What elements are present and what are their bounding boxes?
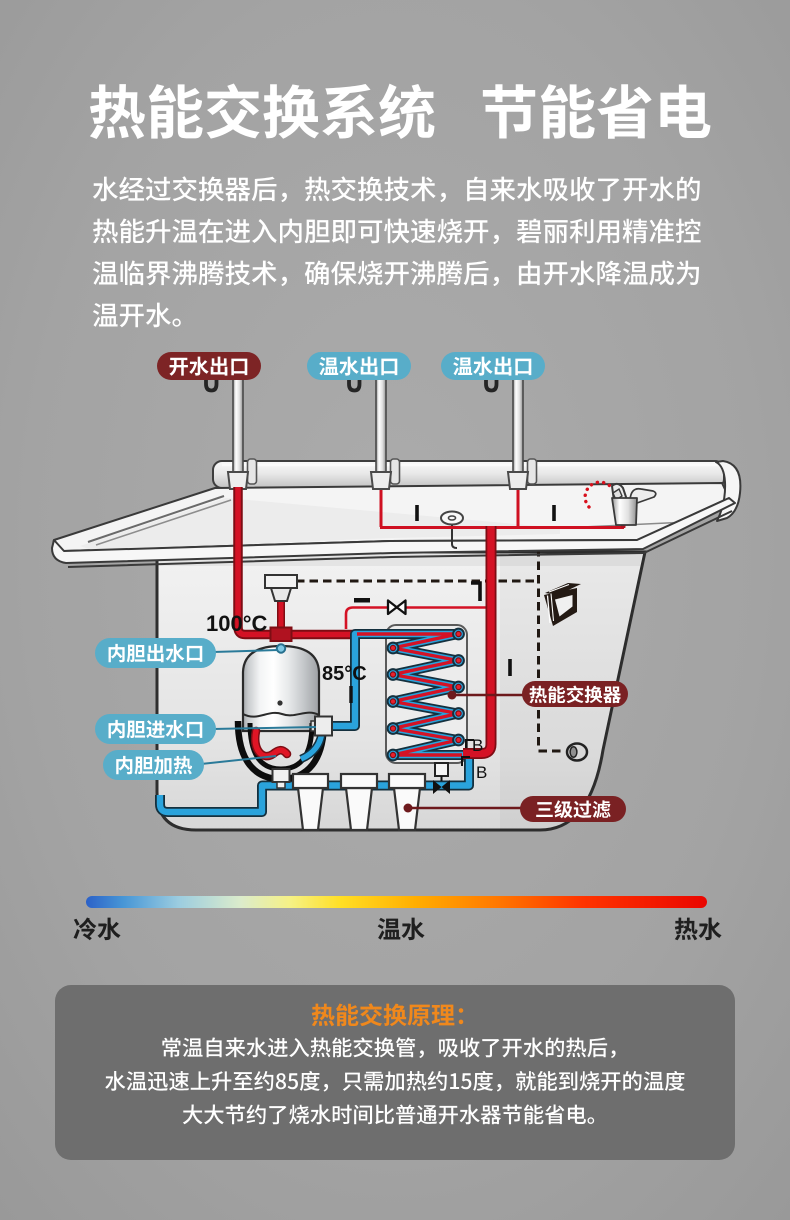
svg-text:B: B — [476, 763, 487, 782]
svg-text:100°C: 100°C — [206, 611, 268, 636]
svg-text:85°C: 85°C — [322, 663, 367, 685]
svg-text:B: B — [472, 736, 483, 755]
